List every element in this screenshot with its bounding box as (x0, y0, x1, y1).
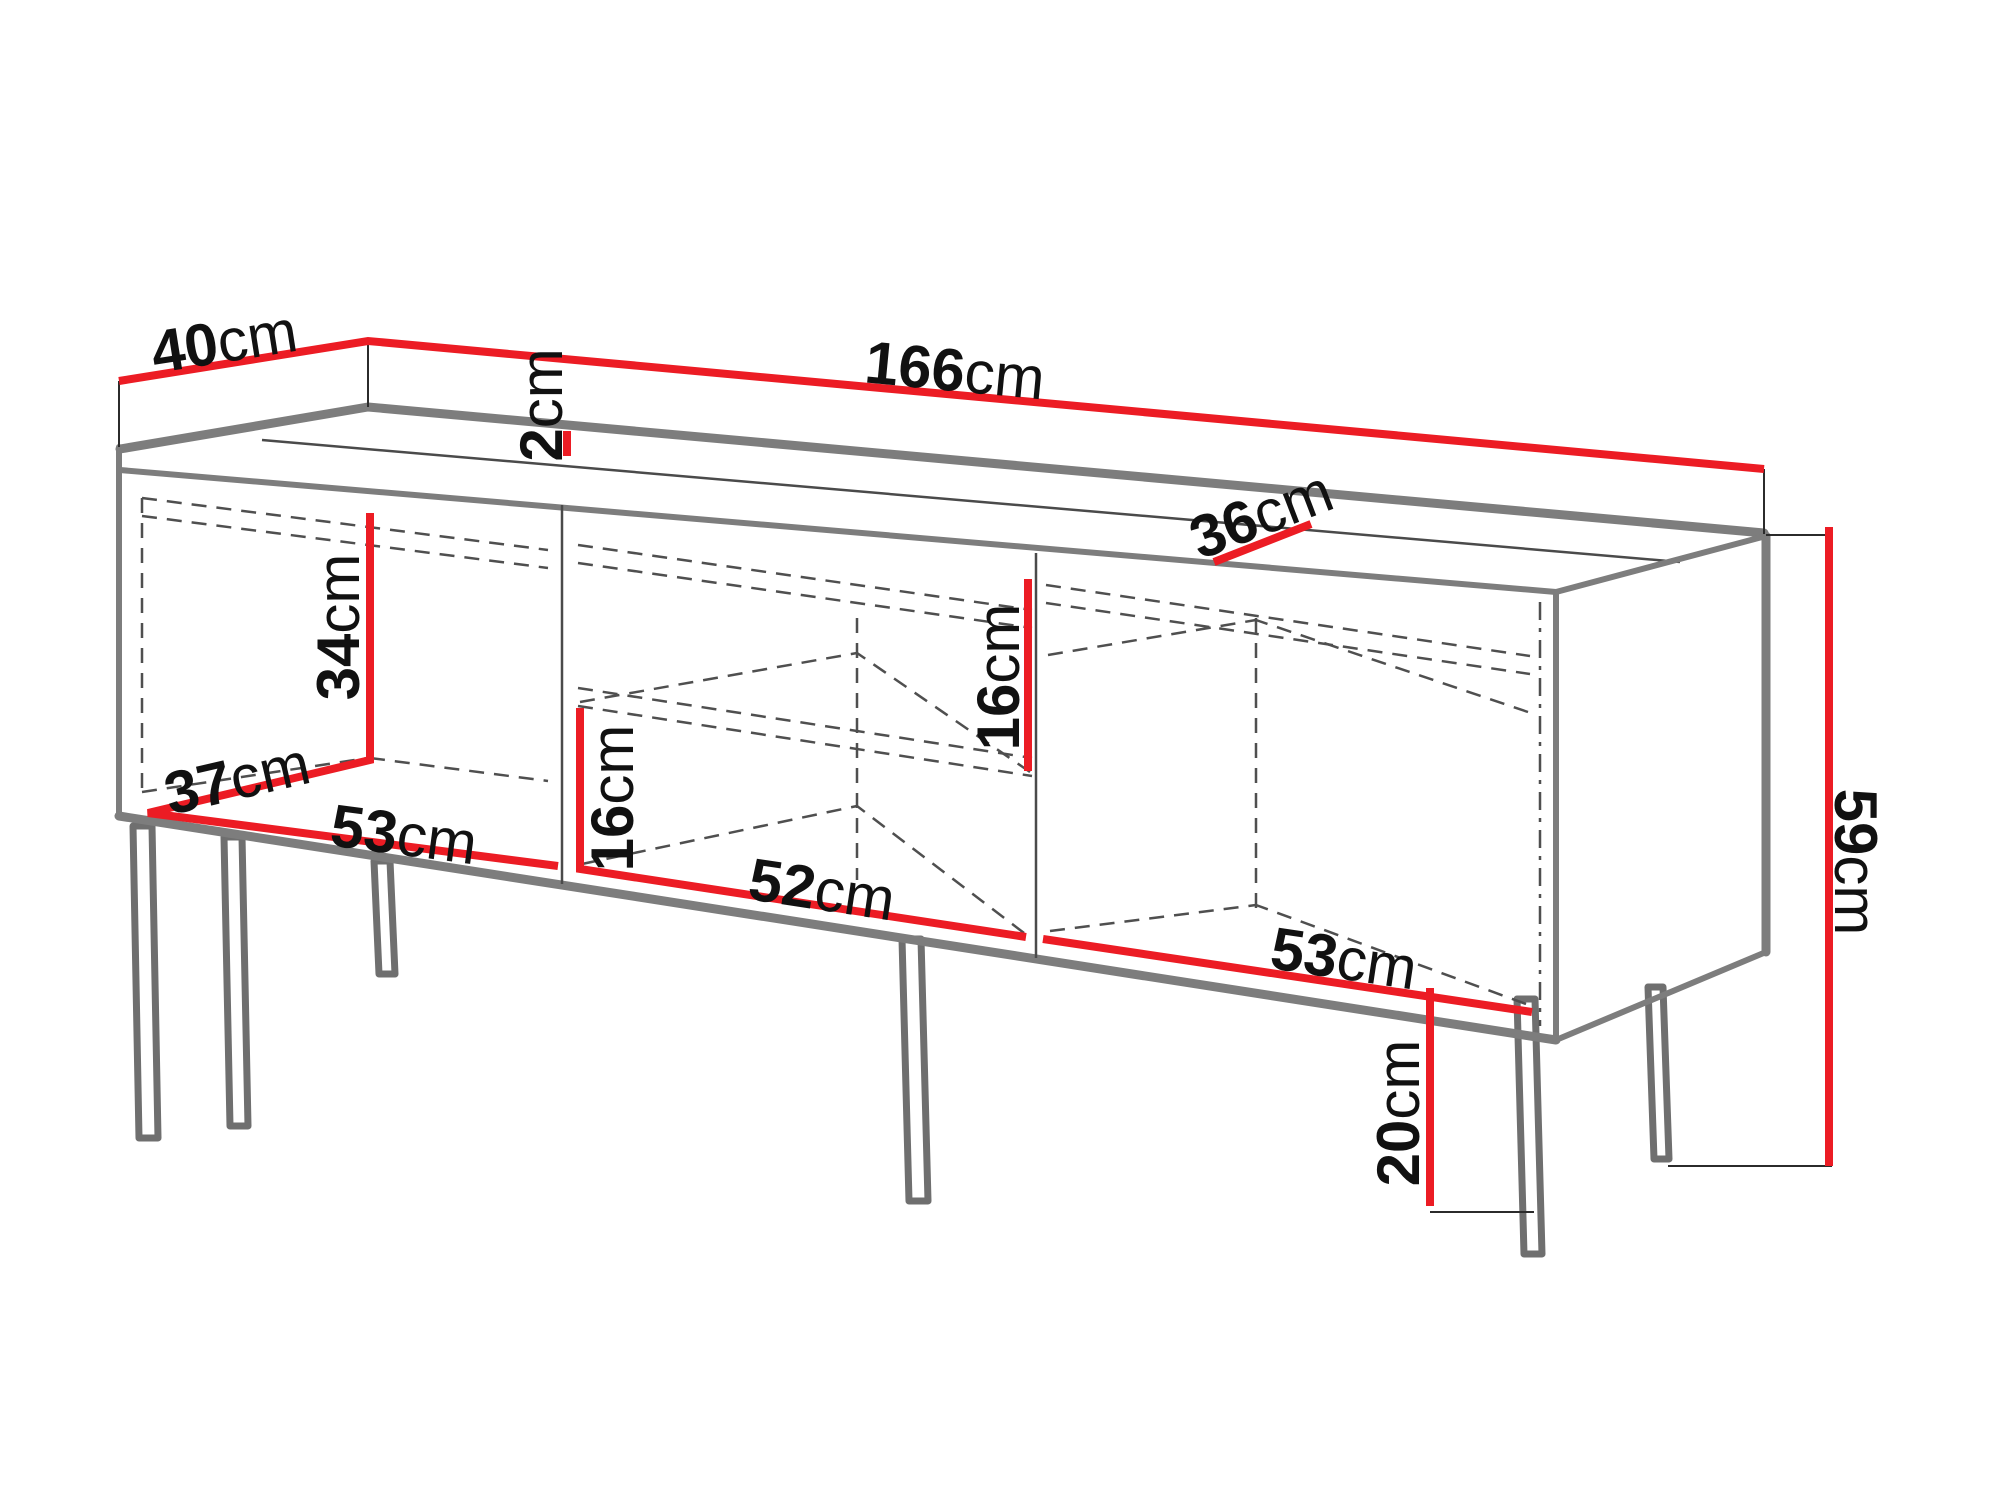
dim-label-left-compartment-width: 53cm (327, 792, 481, 878)
right-top-rail-1 (1046, 585, 1530, 656)
dimension-lines (119, 341, 1829, 1206)
middle-top-rail-1 (578, 545, 1032, 610)
right-top-depth-left (1048, 620, 1256, 655)
dimension-diagram: 40cm 166cm 2cm 36cm 34cm 37cm 53cm 16cm … (0, 0, 2000, 1500)
leg-front-left-inner (224, 837, 248, 1126)
dim-label-top-depth: 40cm (146, 297, 301, 386)
dim-label-middle-upper-height: 16cm (965, 604, 1032, 751)
dim-label-middle-lower-height: 16cm (579, 725, 646, 872)
leg-front-left (133, 826, 158, 1138)
leg-rear-right (1648, 987, 1669, 1159)
right-top-depth-right (1256, 620, 1528, 712)
dim-label-total-height: 59cm (1822, 789, 1889, 936)
extension-lines (119, 341, 1832, 1212)
leg-rear-left (374, 861, 395, 974)
middle-top-rail-2 (578, 563, 1032, 628)
legs (133, 826, 1669, 1254)
middle-shelf-front-edge-1 (578, 688, 1032, 758)
leg-front-center (902, 939, 928, 1201)
dim-label-leg-height: 20cm (1365, 1040, 1432, 1187)
dim-label-total-width: 166cm (862, 329, 1048, 413)
right-top-edge (1556, 536, 1766, 592)
right-top-rail-2 (1046, 603, 1530, 674)
dim-label-left-compartment-depth: 37cm (158, 729, 316, 827)
dim-label-left-compartment-height: 34cm (305, 554, 372, 701)
right-bottom-depth-left (1050, 905, 1256, 931)
dim-label-top-panel-thickness: 2cm (508, 348, 575, 461)
dim-label-top-inner-depth: 36cm (1181, 457, 1342, 572)
cabinet-drawing: 40cm 166cm 2cm 36cm 34cm 37cm 53cm 16cm … (0, 0, 2000, 1500)
left-compartment-bottom-right-edge (370, 758, 548, 781)
middle-shelf-depth-left (580, 653, 857, 702)
dim-label-right-compartment-width: 53cm (1266, 915, 1421, 1003)
middle-shelf-front-edge-2 (578, 706, 1032, 776)
dimension-labels: 40cm 166cm 2cm 36cm 34cm 37cm 53cm 16cm … (146, 297, 1889, 1186)
